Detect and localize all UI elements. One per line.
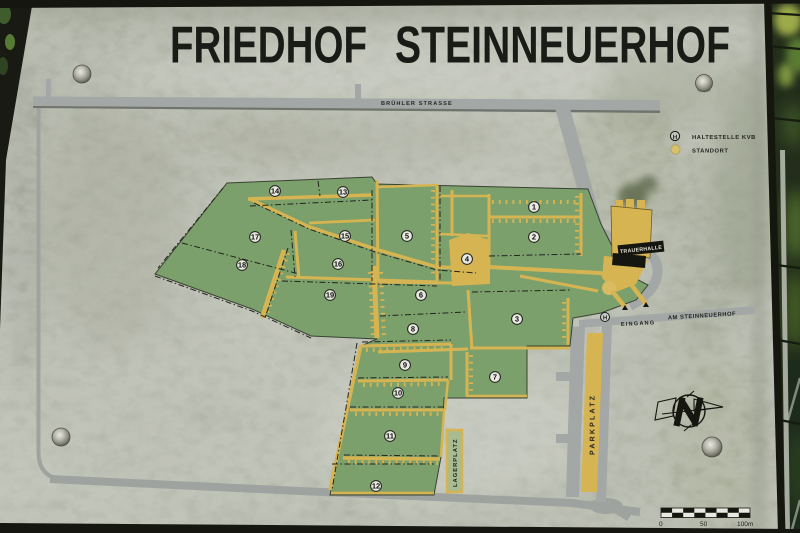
svg-text:STANDORT: STANDORT xyxy=(692,148,729,155)
svg-text:0: 0 xyxy=(659,521,663,528)
svg-text:7: 7 xyxy=(493,373,497,382)
svg-text:2: 2 xyxy=(532,233,536,242)
svg-text:11: 11 xyxy=(386,432,394,441)
svg-text:LAGERPLATZ: LAGERPLATZ xyxy=(452,438,459,487)
svg-text:PARKPLATZ: PARKPLATZ xyxy=(590,394,597,455)
svg-text:100m: 100m xyxy=(737,521,753,528)
svg-text:18: 18 xyxy=(238,261,246,270)
svg-text:13: 13 xyxy=(339,188,347,197)
svg-text:FRIEDHOF: FRIEDHOF xyxy=(170,17,367,75)
svg-text:H: H xyxy=(603,315,607,322)
svg-text:HALTESTELLE KVB: HALTESTELLE KVB xyxy=(692,134,756,141)
svg-text:17: 17 xyxy=(251,233,259,242)
svg-text:6: 6 xyxy=(419,291,423,300)
svg-text:8: 8 xyxy=(411,325,415,334)
svg-text:STEINNEUERHOF: STEINNEUERHOF xyxy=(395,17,730,75)
svg-text:50: 50 xyxy=(700,521,708,528)
svg-text:10: 10 xyxy=(394,389,402,398)
svg-text:1: 1 xyxy=(532,203,536,212)
svg-text:H: H xyxy=(673,134,678,141)
svg-text:BRÜHLER STRASSE: BRÜHLER STRASSE xyxy=(381,100,453,107)
svg-text:15: 15 xyxy=(341,232,349,241)
svg-text:14: 14 xyxy=(271,187,280,196)
svg-text:3: 3 xyxy=(515,315,519,324)
svg-text:12: 12 xyxy=(372,482,380,491)
svg-text:16: 16 xyxy=(334,260,342,269)
svg-text:5: 5 xyxy=(405,232,409,241)
svg-text:9: 9 xyxy=(403,361,407,370)
svg-text:19: 19 xyxy=(326,291,334,300)
